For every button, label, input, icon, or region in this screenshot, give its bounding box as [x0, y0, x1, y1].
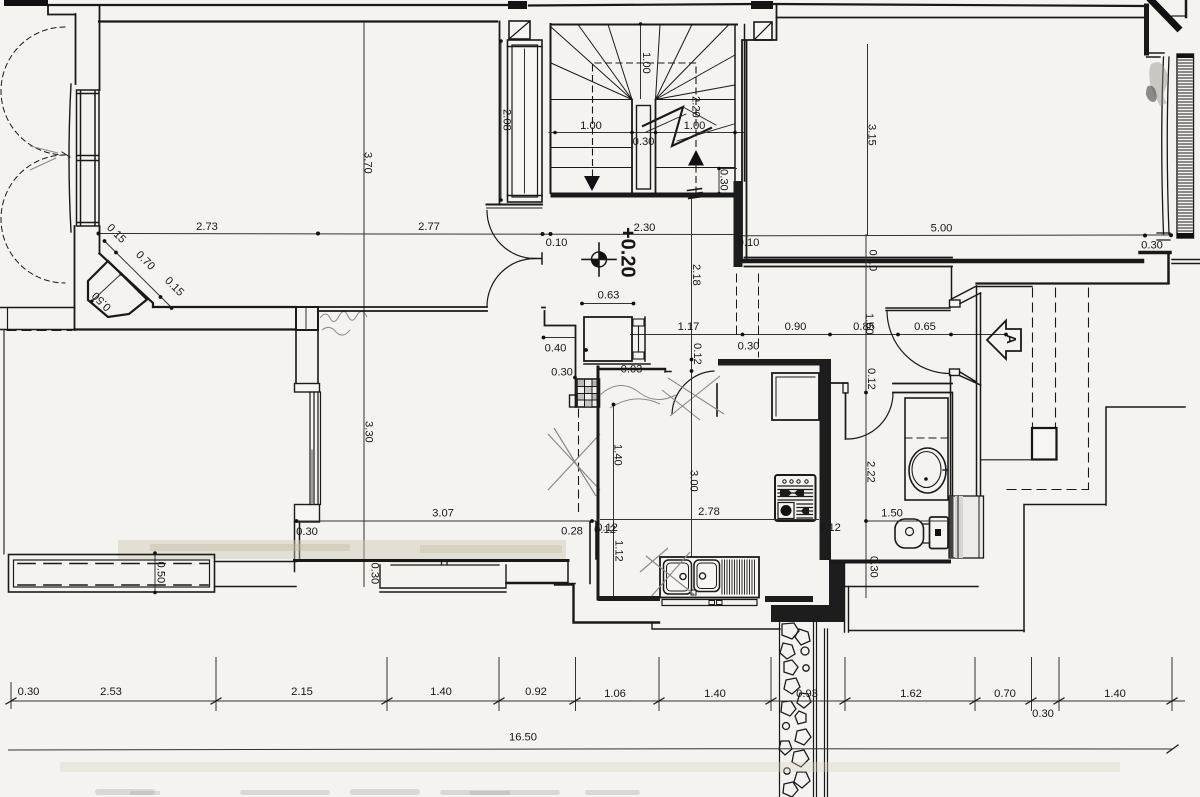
svg-text:16.50: 16.50 — [509, 732, 537, 744]
svg-text:2.22: 2.22 — [865, 461, 877, 483]
svg-text:1.40: 1.40 — [612, 444, 624, 466]
svg-text:2.15: 2.15 — [291, 686, 313, 698]
svg-text:0.30: 0.30 — [1032, 708, 1054, 720]
svg-text:2.08: 2.08 — [501, 109, 513, 131]
svg-text:0.30: 0.30 — [369, 563, 381, 585]
svg-text:1.40: 1.40 — [1104, 688, 1126, 700]
svg-text:A: A — [1004, 335, 1019, 345]
svg-text:0.10: 0.10 — [546, 237, 568, 249]
svg-text:0.30: 0.30 — [738, 341, 760, 353]
svg-text:1.40: 1.40 — [704, 688, 726, 700]
svg-text:1.50: 1.50 — [881, 508, 903, 520]
svg-text:0.30: 0.30 — [718, 169, 730, 191]
svg-text:5.00: 5.00 — [931, 223, 953, 235]
svg-text:0.12: 0.12 — [865, 368, 877, 390]
svg-text:0.70: 0.70 — [994, 688, 1016, 700]
svg-text:3.70: 3.70 — [362, 152, 374, 174]
svg-text:1.17: 1.17 — [678, 321, 700, 333]
svg-text:2.78: 2.78 — [698, 506, 720, 518]
svg-text:0.90: 0.90 — [785, 321, 807, 333]
svg-text:0.50: 0.50 — [155, 562, 167, 584]
svg-text:+0.20: +0.20 — [617, 227, 639, 278]
svg-text:0.93: 0.93 — [796, 688, 818, 700]
svg-text:1.12: 1.12 — [613, 540, 625, 562]
svg-text:3.00: 3.00 — [688, 470, 700, 492]
svg-text:1.06: 1.06 — [604, 688, 626, 700]
svg-text:0.40: 0.40 — [545, 343, 567, 355]
svg-text:0.10: 0.10 — [738, 237, 760, 249]
svg-text:2.53: 2.53 — [100, 686, 122, 698]
svg-text:1.62: 1.62 — [900, 688, 922, 700]
svg-text:2.73: 2.73 — [196, 221, 218, 233]
svg-text:2.77: 2.77 — [418, 221, 440, 233]
svg-text:3.07: 3.07 — [432, 508, 454, 520]
svg-text:0.30: 0.30 — [868, 556, 880, 578]
svg-text:0.92: 0.92 — [525, 686, 547, 698]
svg-text:0.28: 0.28 — [561, 526, 583, 538]
svg-text:0.12: 0.12 — [691, 343, 703, 365]
svg-text:1.00: 1.00 — [580, 120, 602, 132]
svg-text:0.30: 0.30 — [296, 526, 318, 538]
svg-text:0.30: 0.30 — [1141, 240, 1163, 252]
svg-text:3.15: 3.15 — [866, 124, 878, 146]
svg-text:2.18: 2.18 — [690, 264, 702, 286]
svg-text:0.12: 0.12 — [596, 522, 618, 534]
svg-text:1.00: 1.00 — [684, 120, 706, 132]
svg-text:0.12: 0.12 — [819, 522, 841, 534]
svg-text:0.30: 0.30 — [18, 686, 40, 698]
svg-text:0.65: 0.65 — [914, 321, 936, 333]
svg-text:1.60: 1.60 — [863, 313, 875, 335]
svg-text:0.30: 0.30 — [551, 367, 573, 379]
svg-text:0.30: 0.30 — [633, 136, 655, 148]
svg-text:0.63: 0.63 — [598, 290, 620, 302]
svg-text:1.40: 1.40 — [430, 686, 452, 698]
svg-text:3.30: 3.30 — [363, 421, 375, 443]
